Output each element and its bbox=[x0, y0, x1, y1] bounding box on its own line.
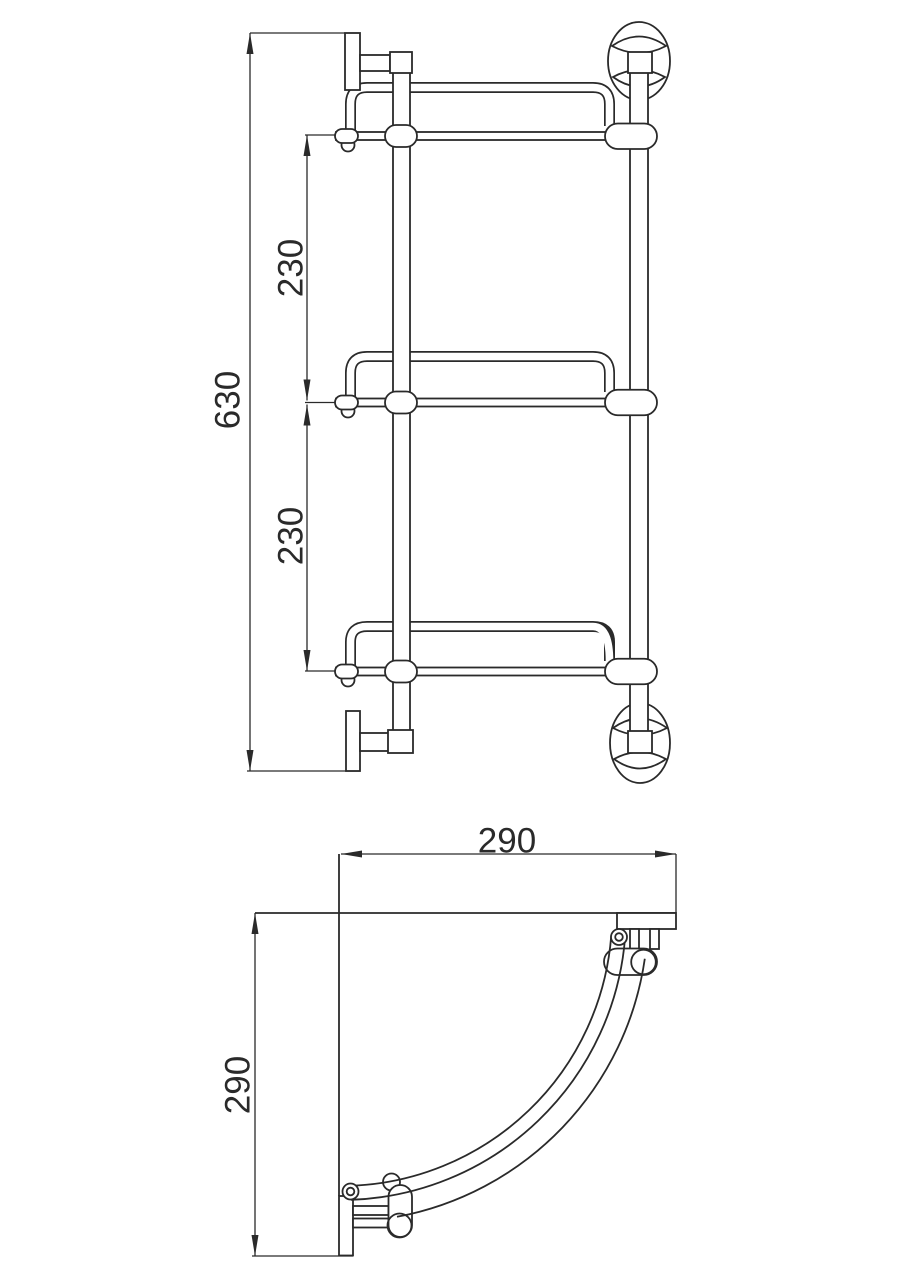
shelf-plate bbox=[336, 668, 650, 676]
bracket-arm bbox=[360, 55, 390, 71]
elevation-view: 630 230 230 bbox=[209, 22, 671, 783]
plan-view: 290 290 bbox=[219, 822, 677, 1257]
junction-block bbox=[390, 52, 412, 73]
arrowhead-down bbox=[252, 1235, 259, 1256]
shelf-end-cap bbox=[335, 396, 358, 410]
post-block-top-right bbox=[628, 52, 652, 73]
arrowhead-up bbox=[247, 33, 254, 54]
arrowhead-up bbox=[304, 405, 311, 426]
junction-block bbox=[388, 730, 413, 753]
shelf-end-cap bbox=[335, 665, 358, 679]
technical-drawing: 630 230 230 bbox=[0, 0, 905, 1280]
glass-shelf-bottom bbox=[335, 665, 650, 687]
glass-shelf-middle bbox=[335, 396, 650, 418]
rail-end-cap-bottom bbox=[343, 1184, 359, 1200]
bracket-plate bbox=[339, 1196, 353, 1256]
glass-shelf-top bbox=[335, 129, 650, 152]
dim-plan-depth: 290 bbox=[219, 913, 354, 1256]
shelf-clamp-bottom bbox=[605, 659, 657, 685]
wall-plate bbox=[345, 33, 360, 90]
arrowhead-left bbox=[341, 851, 362, 858]
shelf-collar-bottom bbox=[385, 661, 417, 683]
rail-arc-inner bbox=[351, 936, 612, 1186]
bracket-post bbox=[353, 1206, 389, 1215]
shelf-plate bbox=[336, 132, 650, 140]
arrowhead-up bbox=[252, 913, 259, 934]
rail-arc-outer bbox=[351, 937, 625, 1199]
shelf-clamp-middle bbox=[605, 390, 657, 416]
bracket-post bbox=[650, 929, 659, 949]
arrowhead-right bbox=[655, 851, 676, 858]
wall-plate bbox=[346, 711, 360, 771]
dim-label-upper-gap: 230 bbox=[272, 239, 311, 297]
arrowhead-down bbox=[304, 650, 311, 671]
bracket-post bbox=[630, 929, 639, 949]
dim-upper-gap: 230 bbox=[272, 135, 343, 403]
bracket-plate bbox=[617, 913, 676, 929]
glass-edge-arc bbox=[397, 959, 645, 1217]
shelf-plate bbox=[336, 399, 650, 407]
shelf-collar-middle bbox=[385, 392, 417, 414]
dim-label-lower-gap: 230 bbox=[272, 507, 311, 565]
shelf-collar-top bbox=[385, 125, 417, 147]
arrowhead-down bbox=[304, 380, 311, 401]
technical-drawing-page: 630 230 230 bbox=[0, 0, 905, 1280]
dim-label-total-height: 630 bbox=[209, 371, 248, 429]
bracket-crescent-upper bbox=[612, 37, 666, 54]
shelf-clamp-top bbox=[605, 124, 657, 150]
dim-label-plan-depth: 290 bbox=[219, 1056, 258, 1114]
bracket-post bbox=[353, 1219, 389, 1228]
dim-plan-width: 290 bbox=[341, 822, 676, 914]
arrowhead-down bbox=[247, 750, 254, 771]
dim-lower-gap: 230 bbox=[272, 405, 341, 672]
shelf-rails bbox=[351, 88, 610, 671]
shelf-end-cap bbox=[335, 129, 358, 143]
bracket-crescent-lower bbox=[614, 752, 666, 769]
post-block-bottom-right bbox=[628, 731, 652, 753]
bracket-arm bbox=[360, 733, 390, 751]
dim-label-plan-width: 290 bbox=[478, 822, 536, 861]
rail-end-cap-top bbox=[611, 929, 627, 945]
arrowhead-up bbox=[304, 135, 311, 156]
